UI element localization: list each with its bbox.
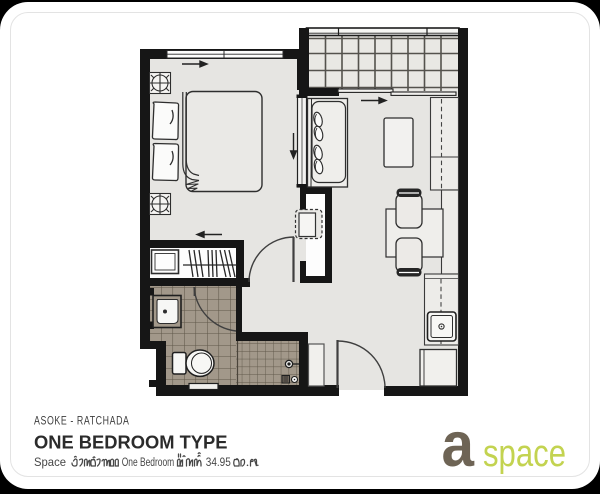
- svg-text:34.95: 34.95: [206, 455, 231, 469]
- svg-text:space: space: [483, 433, 566, 475]
- svg-text:ONE BEDROOM TYPE: ONE BEDROOM TYPE: [34, 432, 228, 453]
- svg-text:One Bedroom: One Bedroom: [122, 455, 175, 469]
- svg-text:Space: Space: [34, 455, 66, 469]
- svg-text:ASOKE - RATCHADA: ASOKE - RATCHADA: [34, 414, 130, 428]
- svg-text:a: a: [442, 410, 475, 480]
